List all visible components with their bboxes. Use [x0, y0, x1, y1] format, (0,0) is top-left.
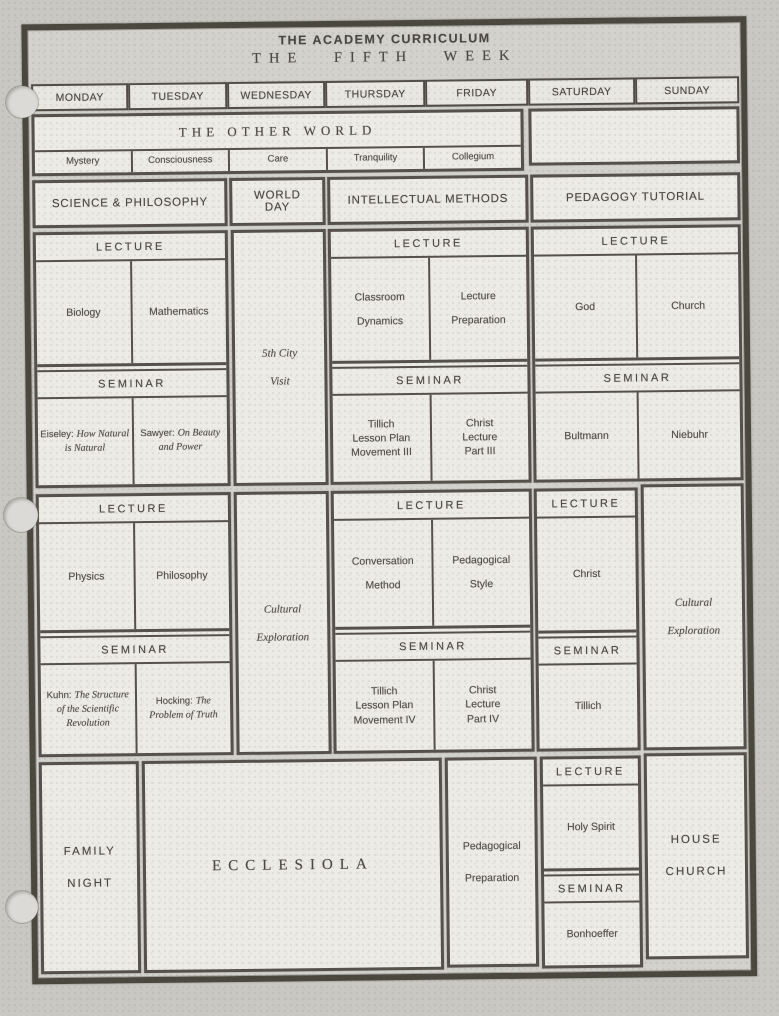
seminar-author: Kuhn: — [47, 689, 72, 700]
cell-family-night: FAMILY NIGHT — [39, 761, 141, 974]
day-header-thursday: THURSDAY — [325, 80, 425, 108]
cell-line: Tillich — [368, 417, 395, 431]
day-header-tuesday: TUESDAY — [128, 82, 227, 110]
lecture-label: LECTURE — [36, 233, 225, 262]
ped-prep-line1: Pedagogical — [463, 840, 521, 853]
s2-intellectual-seminar-row: Tillich Lesson Plan Movement IV Christ L… — [336, 660, 532, 751]
cell-physics: Physics — [39, 523, 134, 630]
cell-holy-spirit: Holy Spirit — [543, 785, 639, 868]
lecture-label: LECTURE — [39, 495, 228, 524]
s2-saturday-block: LECTURE Christ SEMINAR Tillich — [534, 487, 641, 751]
cell-pedagogical-preparation: Pedagogical Preparation — [445, 757, 539, 968]
cell-cultural-exploration-wed: Cultural Exploration — [234, 491, 332, 755]
seminar-label: SEMINAR — [544, 873, 639, 903]
cell-line: Lesson Plan — [355, 698, 413, 713]
cell-line: Classroom — [355, 290, 405, 305]
seminar-label: SEMINAR — [335, 631, 530, 662]
cell-mathematics: Mathematics — [130, 260, 227, 363]
scanned-curriculum-page: THE ACADEMY CURRICULUM THE FIFTH WEEK MO… — [0, 0, 779, 1016]
cell-line: Christ — [469, 683, 497, 697]
s1-pedagogy-block: LECTURE God Church SEMINAR Bultmann Nieb… — [531, 224, 744, 482]
fifth-city-line1: 5th City — [262, 347, 297, 359]
cell-philosophy: Philosophy — [133, 522, 230, 629]
day-header-sunday: SUNDAY — [635, 76, 739, 104]
cell-conversation-method: Conversation Method — [334, 520, 432, 627]
cell-line: Conversation — [352, 554, 414, 569]
family-night-line1: FAMILY — [64, 845, 116, 858]
cell-biology: Biology — [36, 261, 131, 364]
ped-prep-line2: Preparation — [463, 872, 521, 885]
cell-line: Lesson Plan — [352, 431, 410, 446]
cell-sawyer-seminar: Sawyer:On Beauty and Power — [131, 397, 227, 484]
cell-lecture-preparation: Lecture Preparation — [428, 257, 528, 360]
ecclesiola-label: ECCLESIOLA — [212, 856, 374, 875]
other-world-block: THE OTHER WORLD Mystery Consciousness Ca… — [31, 109, 524, 177]
cell-cultural-exploration-sun: Cultural Exploration — [641, 483, 747, 750]
day-header-friday: FRIDAY — [425, 79, 528, 107]
day-header-wednesday: WEDNESDAY — [227, 81, 325, 109]
cell-line: Style — [470, 577, 494, 591]
seminar-book-title: How Natural is Natural — [65, 428, 130, 454]
cell-classroom-dynamics: Classroom Dynamics — [331, 258, 429, 361]
cell-tillich: Tillich — [539, 664, 638, 748]
cell-pedagogical-style: Pedagogical Style — [431, 519, 531, 626]
s1-intellectual-lecture-row: Classroom Dynamics Lecture Preparation — [331, 257, 527, 364]
cell-tranquility: Tranquility — [326, 148, 424, 170]
s2-saturday-lecture-row: Christ — [537, 517, 636, 633]
cell-tillich-movement-3: Tillich Lesson Plan Movement III — [333, 395, 430, 482]
fifth-city-line2: Visit — [262, 375, 297, 387]
other-world-title: THE OTHER WORLD — [34, 112, 520, 153]
cell-niebuhr: Niebuhr — [637, 391, 741, 478]
cell-line: Lecture — [462, 430, 497, 445]
cell-church: Church — [635, 254, 739, 357]
s1-pedagogy-seminar-row: Bultmann Niebuhr — [536, 391, 741, 479]
section-world-day: WORLD DAY — [229, 177, 326, 226]
s1-intellectual-block: LECTURE Classroom Dynamics Lecture Prepa… — [328, 227, 532, 485]
cultural-line2: Exploration — [667, 625, 720, 638]
s1-science-lecture-row: Biology Mathematics — [36, 260, 226, 367]
section-pedagogy-tutorial: PEDAGOGY TUTORIAL — [530, 172, 741, 222]
seminar-label: SEMINAR — [37, 368, 226, 399]
cell-christ: Christ — [537, 517, 636, 630]
s2-intellectual-lecture-row: Conversation Method Pedagogical Style — [334, 519, 530, 630]
seminar-label: SEMINAR — [535, 362, 739, 393]
s2-intellectual-block: LECTURE Conversation Method Pedagogical … — [331, 489, 535, 754]
house-church-line2: CHURCH — [666, 865, 728, 878]
seminar-label: SEMINAR — [538, 635, 636, 665]
lecture-label: LECTURE — [537, 490, 635, 518]
lecture-label: LECTURE — [534, 227, 738, 256]
punch-hole-middle — [4, 498, 38, 532]
evening-saturday-lecture-row: Holy Spirit — [543, 785, 639, 871]
weekend-empty-cell — [528, 106, 740, 165]
cell-mystery: Mystery — [35, 151, 131, 173]
cultural-line2: Exploration — [256, 631, 309, 644]
cell-god: God — [534, 255, 636, 358]
cell-line: Part III — [464, 444, 495, 459]
cell-line: Movement III — [351, 445, 412, 460]
s2-science-seminar-row: Kuhn:The Structure of the Scientific Rev… — [41, 663, 231, 754]
cell-care: Care — [228, 149, 326, 171]
cell-christ-lecture-4: Christ Lecture Part IV — [432, 660, 532, 750]
cell-line: Part IV — [467, 712, 499, 727]
lecture-label: LECTURE — [334, 492, 529, 521]
cultural-line1: Cultural — [256, 603, 309, 616]
cell-bultmann: Bultmann — [536, 392, 638, 479]
s1-intellectual-seminar-row: Tillich Lesson Plan Movement III Christ … — [333, 394, 529, 482]
world-day-line1: WORLD — [254, 189, 301, 202]
cell-tillich-movement-4: Tillich Lesson Plan Movement IV — [336, 661, 434, 751]
paper-sheet: THE ACADEMY CURRICULUM THE FIFTH WEEK MO… — [0, 0, 779, 1016]
cell-collegium: Collegium — [423, 147, 521, 169]
s1-science-block: LECTURE Biology Mathematics SEMINAR Eise… — [33, 230, 231, 488]
day-header-monday: MONDAY — [31, 83, 128, 111]
cell-5th-city-visit: 5th City Visit — [231, 229, 329, 486]
s1-pedagogy-lecture-row: God Church — [534, 254, 739, 361]
seminar-label: SEMINAR — [332, 365, 527, 396]
s1-science-seminar-row: Eiseley:How Natural is Natural Sawyer:On… — [38, 397, 228, 485]
cell-line: Christ — [466, 416, 494, 430]
evening-saturday-block: LECTURE Holy Spirit SEMINAR Bonhoeffer — [540, 755, 643, 968]
cell-line: Lecture — [465, 697, 500, 712]
section-intellectual-methods: INTELLECTUAL METHODS — [327, 175, 529, 225]
cell-eiseley-seminar: Eiseley:How Natural is Natural — [38, 398, 132, 485]
cell-house-church: HOUSE CHURCH — [644, 752, 749, 959]
world-day-line2: DAY — [265, 201, 290, 213]
cell-line: Movement IV — [354, 713, 416, 728]
cell-kuhn-seminar: Kuhn:The Structure of the Scientific Rev… — [41, 664, 136, 754]
day-header-saturday: SATURDAY — [528, 77, 635, 105]
punch-hole-bottom — [6, 891, 38, 923]
house-church-line1: HOUSE — [665, 833, 727, 846]
cell-ecclesiola: ECCLESIOLA — [142, 758, 444, 973]
punch-hole-top — [6, 86, 38, 118]
cell-line: Dynamics — [357, 314, 403, 329]
s2-saturday-seminar-row: Tillich — [539, 664, 638, 748]
cell-line: Preparation — [451, 312, 505, 327]
other-world-subjects-row: Mystery Consciousness Care Tranquility C… — [35, 147, 521, 174]
evening-saturday-seminar-row: Bonhoeffer — [544, 902, 640, 965]
cell-consciousness: Consciousness — [130, 150, 228, 172]
seminar-author: Sawyer: — [140, 428, 174, 439]
lecture-label: LECTURE — [543, 758, 638, 786]
cell-christ-lecture-3: Christ Lecture Part III — [429, 394, 528, 481]
seminar-label: SEMINAR — [40, 634, 229, 665]
cell-line: Tillich — [371, 684, 398, 698]
cell-hocking-seminar: Hocking:The Problem of Truth — [134, 663, 231, 753]
cell-bonhoeffer: Bonhoeffer — [544, 902, 640, 965]
cultural-line1: Cultural — [667, 597, 720, 610]
seminar-author: Hocking: — [156, 695, 193, 706]
family-night-line2: NIGHT — [64, 877, 116, 890]
s2-science-lecture-row: Physics Philosophy — [39, 522, 229, 633]
cell-line: Pedagogical — [452, 553, 510, 568]
lecture-label: LECTURE — [331, 230, 526, 259]
cell-line: Method — [365, 578, 400, 593]
seminar-author: Eiseley: — [40, 429, 73, 440]
cell-line: Lecture — [461, 289, 496, 304]
s2-science-block: LECTURE Physics Philosophy SEMINAR Kuhn:… — [36, 492, 234, 757]
section-science-philosophy: SCIENCE & PHILOSOPHY — [32, 178, 228, 228]
